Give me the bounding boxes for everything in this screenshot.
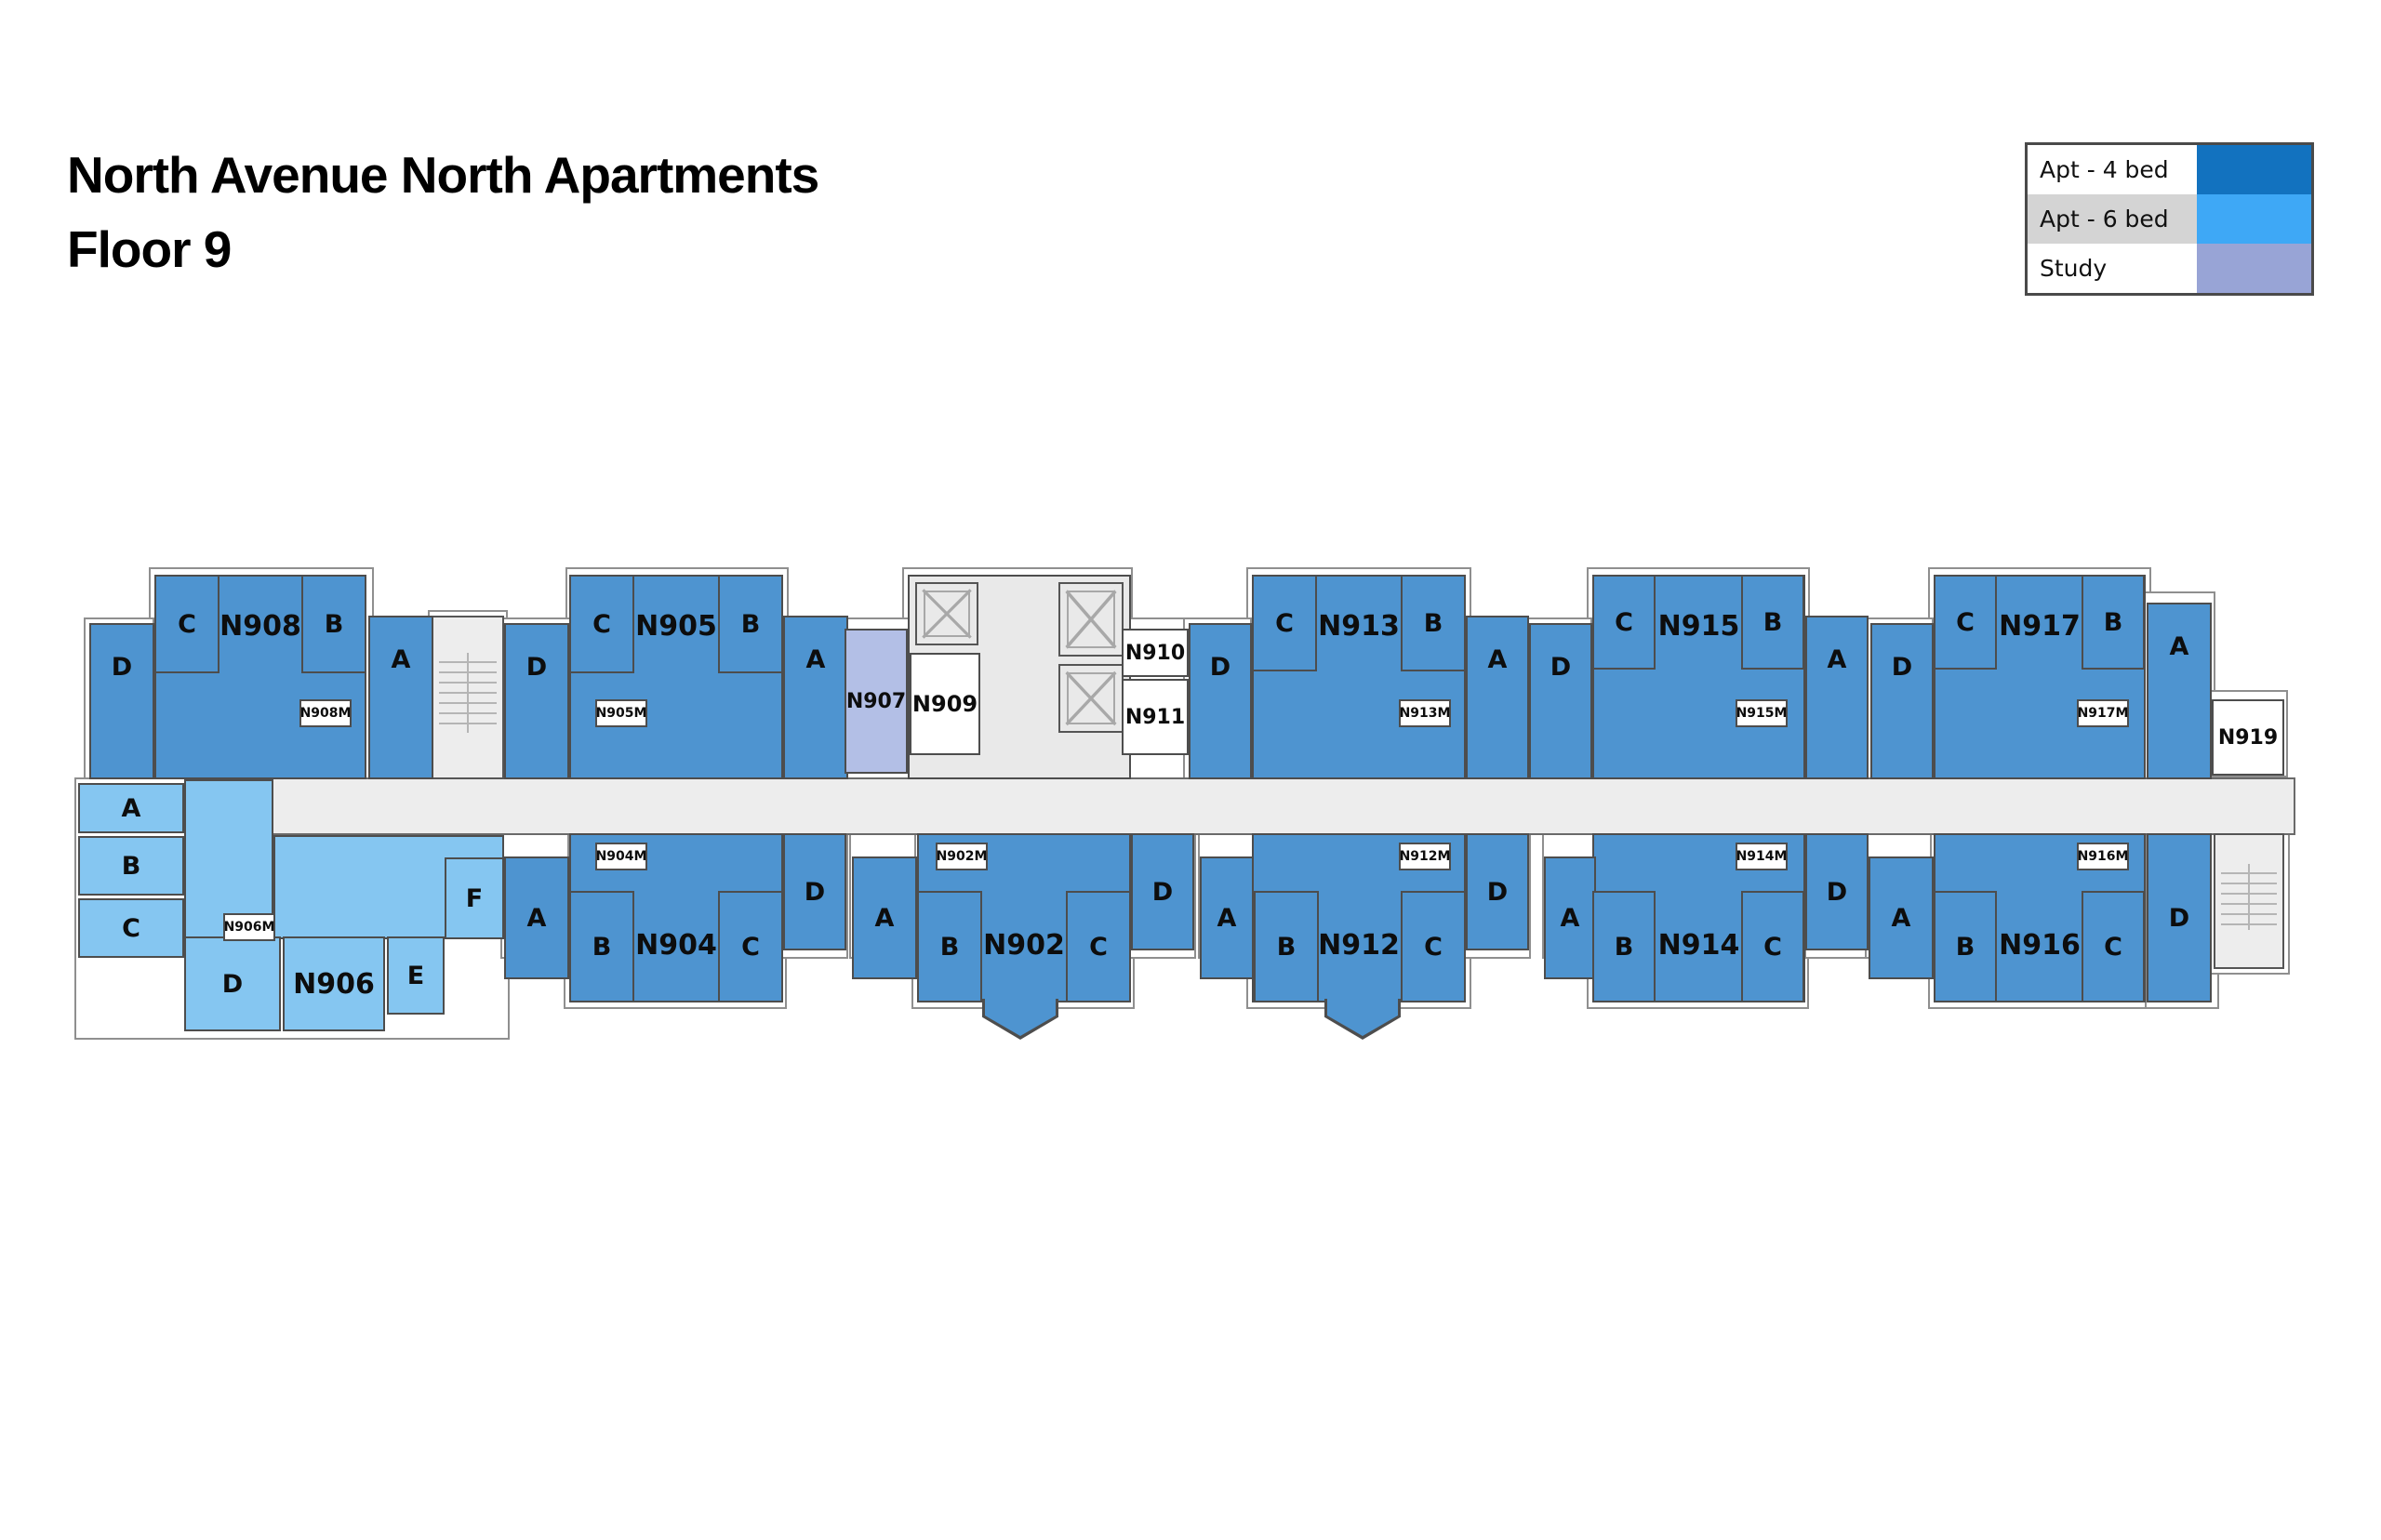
room-n916-d: D bbox=[2147, 833, 2212, 1002]
room-n917-d: D bbox=[1870, 623, 1934, 779]
room-n912m: N912M bbox=[1399, 843, 1451, 870]
stairwell-right bbox=[2214, 833, 2284, 969]
room-n919: N919 bbox=[2212, 699, 2284, 776]
room-n906-e: E bbox=[387, 936, 445, 1015]
room-n905-c: C bbox=[569, 575, 634, 673]
room-n902-c: C bbox=[1066, 891, 1131, 1002]
room-n912-d: D bbox=[1466, 833, 1529, 950]
unit-n906-living: N906 bbox=[283, 936, 385, 1031]
room-n915m: N915M bbox=[1736, 699, 1788, 727]
room-n912-c: C bbox=[1401, 891, 1466, 1002]
room-n915-a: A bbox=[1805, 616, 1869, 779]
unit-label-n906: N906 bbox=[285, 938, 383, 1029]
room-n916-c: C bbox=[2082, 891, 2145, 1002]
room-n908-d: D bbox=[89, 623, 154, 779]
room-n905-b: B bbox=[718, 575, 783, 673]
room-n915-b: B bbox=[1741, 575, 1804, 670]
room-n906m: N906M bbox=[223, 913, 275, 941]
room-n904-a: A bbox=[504, 856, 569, 979]
bay-window-n902 bbox=[982, 999, 1058, 1040]
room-n917-a: A bbox=[2147, 603, 2212, 779]
room-n909: N909 bbox=[910, 653, 980, 755]
floor-plan-page: North Avenue North Apartments Floor 9 Ap… bbox=[0, 0, 2381, 1540]
room-n905-d: D bbox=[504, 623, 569, 779]
legend-swatch-apt4 bbox=[2197, 145, 2311, 194]
room-n916-a: A bbox=[1869, 856, 1934, 979]
elevator-shaft bbox=[1058, 664, 1124, 733]
bay-window-n912 bbox=[1324, 999, 1401, 1040]
room-n910: N910 bbox=[1122, 629, 1189, 677]
bay-window-fill bbox=[1327, 999, 1398, 1036]
room-n902m: N902M bbox=[936, 843, 988, 870]
room-n914-a: A bbox=[1544, 856, 1596, 979]
room-n902-d: D bbox=[1131, 833, 1194, 950]
room-n917-c: C bbox=[1934, 575, 1997, 670]
room-n914-d: D bbox=[1805, 833, 1869, 950]
room-n906-c: C bbox=[78, 898, 184, 958]
room-n911: N911 bbox=[1122, 679, 1189, 755]
room-n916-b: B bbox=[1934, 891, 1997, 1002]
room-n904-c: C bbox=[718, 891, 783, 1002]
legend: Apt - 4 bed Apt - 6 bed Study bbox=[2025, 142, 2314, 296]
page-title-line1: North Avenue North Apartments bbox=[67, 138, 818, 212]
room-n914-b: B bbox=[1592, 891, 1656, 1002]
room-n905-a: A bbox=[783, 616, 848, 779]
legend-swatch-apt6 bbox=[2197, 194, 2311, 244]
room-n915-c: C bbox=[1592, 575, 1656, 670]
room-n913m: N913M bbox=[1399, 699, 1451, 727]
legend-label-study: Study bbox=[2028, 244, 2197, 293]
room-n907-study: N907 bbox=[845, 629, 908, 774]
room-n908-b: B bbox=[301, 575, 366, 673]
room-n912-b: B bbox=[1254, 891, 1319, 1002]
room-n913-c: C bbox=[1252, 575, 1317, 671]
room-n913-a: A bbox=[1466, 616, 1529, 779]
room-n902-b: B bbox=[917, 891, 982, 1002]
room-n906-f: F bbox=[445, 857, 504, 939]
stair-treads-icon bbox=[2221, 864, 2278, 930]
legend-swatch-study bbox=[2197, 244, 2311, 293]
legend-label-apt6: Apt - 6 bed bbox=[2028, 194, 2197, 244]
room-n904-b: B bbox=[569, 891, 634, 1002]
legend-label-apt4: Apt - 4 bed bbox=[2028, 145, 2197, 194]
page-title-line2: Floor 9 bbox=[67, 212, 818, 286]
room-n906-b: B bbox=[78, 836, 184, 896]
room-n914m: N914M bbox=[1736, 843, 1788, 870]
room-n915-d: D bbox=[1529, 623, 1592, 779]
stairwell-left bbox=[432, 616, 504, 779]
room-n908m: N908M bbox=[299, 699, 352, 727]
room-n906-a: A bbox=[78, 783, 184, 833]
room-n913-b: B bbox=[1401, 575, 1466, 671]
room-n906-d: D bbox=[184, 936, 281, 1031]
room-n912-a: A bbox=[1200, 856, 1254, 979]
corridor bbox=[272, 777, 2295, 835]
room-n916m: N916M bbox=[2077, 843, 2129, 870]
room-n917m: N917M bbox=[2077, 699, 2129, 727]
stair-treads-icon bbox=[439, 653, 497, 733]
room-n904m: N904M bbox=[595, 843, 647, 870]
room-n914-c: C bbox=[1741, 891, 1804, 1002]
room-n908-c: C bbox=[154, 575, 219, 673]
elevator-shaft bbox=[915, 582, 978, 645]
room-n908-a: A bbox=[368, 616, 433, 779]
room-n913-d: D bbox=[1189, 623, 1252, 779]
page-title: North Avenue North Apartments Floor 9 bbox=[67, 138, 818, 286]
room-n902-a: A bbox=[852, 856, 917, 979]
elevator-shaft bbox=[1058, 582, 1124, 657]
room-n917-b: B bbox=[2082, 575, 2145, 670]
room-n905m: N905M bbox=[595, 699, 647, 727]
room-n904-d: D bbox=[783, 833, 846, 950]
bay-window-fill bbox=[985, 999, 1056, 1036]
